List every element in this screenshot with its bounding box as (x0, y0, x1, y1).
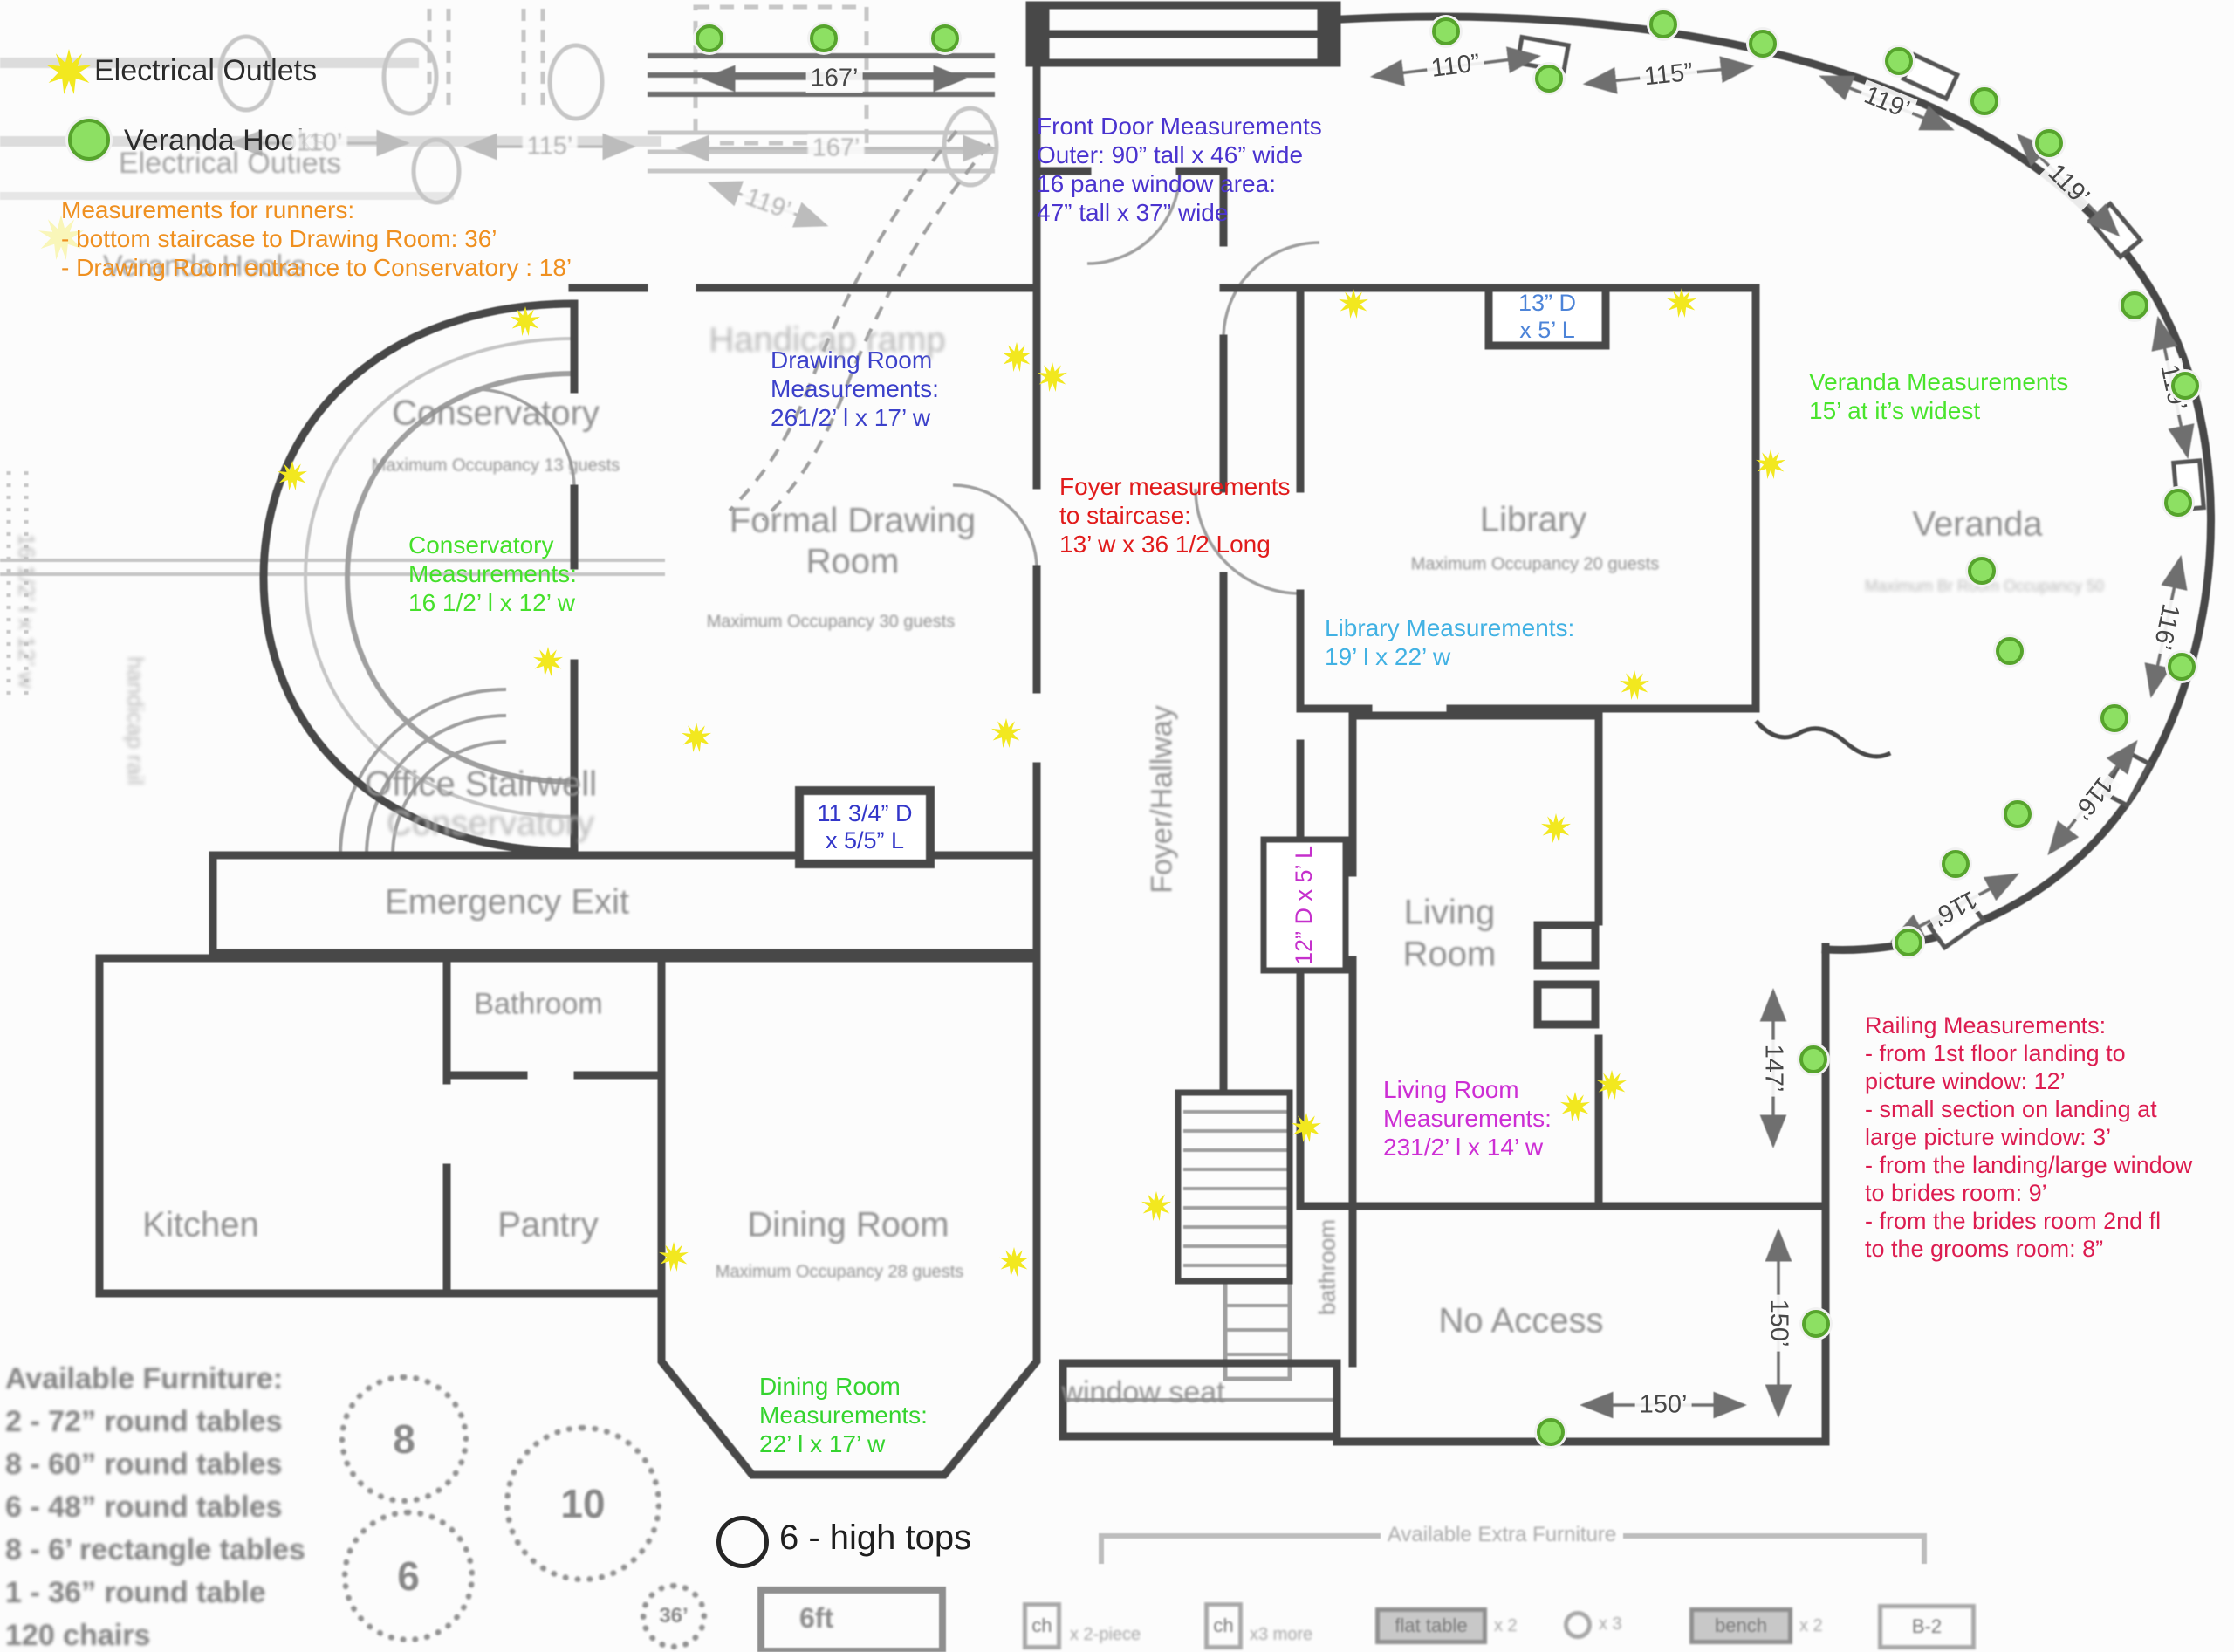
round-table: 10 (504, 1425, 661, 1582)
veranda-hook-icon (1970, 87, 1998, 115)
high-tops-label: 6 - high tops (779, 1518, 971, 1558)
veranda-hook-icon (2121, 291, 2148, 319)
legend-electrical-outlets-label: Electrical Outlets (94, 54, 317, 88)
room-label: Library (1480, 501, 1586, 540)
veranda-hook-icon (2171, 372, 2199, 400)
extra-furniture-item (1564, 1611, 1592, 1639)
available-furniture-list: Available Furniture:2 - 72” round tables… (5, 1358, 305, 1652)
veranda-hook-icon (1968, 557, 1996, 585)
annotation-runners: Measurements for runners:- bottom stairc… (61, 195, 572, 282)
annotation-railing: Railing Measurements:- from 1st floor la… (1865, 1011, 2192, 1263)
veranda-hook-icon (810, 24, 838, 52)
room-label: Conservatory (392, 394, 600, 434)
veranda-hook-icon (696, 24, 723, 52)
veranda-hook-icon (2035, 129, 2063, 157)
veranda-hook-icon (2100, 704, 2128, 732)
room-label: Dining Room (747, 1206, 949, 1245)
extra-furniture-item-count: x 2 (1494, 1616, 1518, 1636)
dimension-label: 147’ (1759, 1040, 1788, 1097)
veranda-hook-icon (1895, 929, 1922, 956)
room-label: Office Stairwell (365, 765, 597, 805)
veranda-hook-icon (1799, 1045, 1827, 1073)
room-label: window seat (1061, 1376, 1224, 1410)
extra-furniture-item: flat table (1375, 1607, 1487, 1644)
extra-furniture-item: ch (1204, 1602, 1243, 1649)
room-label: Maximum Occupancy 13 guests (372, 456, 620, 476)
dimension-label: 150’ (1635, 1391, 1692, 1420)
room-label: Kitchen (142, 1206, 258, 1245)
dimension-box-column-13d: 13” Dx 5’ L (1489, 288, 1606, 346)
room-label: Maximum Occupancy 28 guests (716, 1263, 964, 1283)
veranda-hook-icon (2004, 800, 2032, 828)
veranda-hook-icon (2164, 489, 2192, 517)
room-label: Living (1404, 894, 1496, 933)
room-label: Foyer/Hallway (1146, 705, 1180, 893)
room-label: bathroom (1314, 1219, 1341, 1315)
annotation-veranda: Veranda Measurements15’ at it’s widest (1809, 367, 2068, 425)
room-label: 16 1/2’ l x 12’ w (13, 533, 40, 688)
round-table: 8 (339, 1374, 469, 1504)
extra-furniture-item: bench (1689, 1607, 1792, 1644)
room-label: No Access (1439, 1302, 1604, 1341)
floor-plan-canvas: Electrical Outlets Electrical Outlets Ve… (0, 0, 2234, 1652)
annotation-front-door: Front Door MeasurementsOuter: 90” tall x… (1037, 112, 1322, 227)
dimension-label: 167’ (806, 65, 863, 93)
room-label: Bathroom (474, 988, 602, 1022)
dimension-label: 110’ (292, 129, 347, 158)
extra-furniture-title: Available Extra Furniture (1388, 1523, 1616, 1547)
dimension-label: 115’ (523, 133, 578, 161)
veranda-hook-icon (1942, 850, 1970, 878)
high-top-table-icon (716, 1516, 769, 1568)
room-label: Maximum Occupancy 20 guests (1411, 555, 1660, 575)
veranda-hook-icon (931, 24, 959, 52)
extra-furniture-item: ch (1023, 1602, 1061, 1649)
extra-furniture-item-count: x 2 (1799, 1616, 1823, 1636)
veranda-hook-icon (2168, 653, 2196, 681)
dimension-box-column-11d: 11 3/4” Dx 5/5” L (799, 791, 930, 864)
veranda-hook-icon (1885, 47, 1913, 75)
extra-furniture-item: B-2 (1878, 1604, 1976, 1649)
annotation-conservatory: ConservatoryMeasurements:16 1/2’ l x 12’… (408, 531, 577, 617)
veranda-hook-icon (1537, 1418, 1565, 1446)
extra-furniture-item-count: x 2-piece (1070, 1625, 1141, 1645)
dimension-label: 115” (1639, 58, 1699, 93)
dimension-label: 150’ (1765, 1295, 1793, 1352)
round-table: 6 (342, 1510, 475, 1642)
annotation-living-room: Living RoomMeasurements:231/2’ l x 14’ w (1383, 1075, 1552, 1162)
room-label: Formal Drawing (730, 502, 976, 541)
veranda-hook-icon (1749, 30, 1777, 58)
annotation-dining-room: Dining RoomMeasurements:22’ l x 17’ w (759, 1372, 928, 1458)
veranda-hook-icon (1649, 10, 1677, 38)
room-label: Veranda (1912, 505, 2042, 545)
room-label: Maximum Occupancy 30 guests (707, 613, 956, 633)
veranda-hook-icon (1432, 17, 1460, 45)
room-label: Conservatory (387, 805, 594, 844)
extra-furniture-item-count: x3 more (1250, 1625, 1312, 1645)
room-label: Room (806, 543, 900, 582)
veranda-hook-icon (1996, 637, 2024, 665)
room-label: Handicap ramp (709, 321, 945, 360)
dimension-label: 167’ (808, 134, 865, 163)
veranda-hook-legend-icon (68, 119, 110, 161)
room-label: Pantry (497, 1206, 599, 1245)
annotation-library: Library Measurements:19’ l x 22’ w (1325, 614, 1574, 671)
six-ft-table-label: 6ft (799, 1602, 833, 1635)
room-label: handicap rail (122, 656, 149, 785)
round-table: 36’ (641, 1583, 707, 1649)
veranda-hook-icon (1802, 1310, 1830, 1338)
veranda-hook-icon (1535, 65, 1563, 93)
annotation-foyer: Foyer measurementsto staircase:13’ w x 3… (1059, 472, 1291, 559)
room-label: Room (1403, 936, 1497, 975)
extra-furniture-item-count: x 3 (1599, 1614, 1622, 1635)
room-label: Emergency Exit (385, 883, 629, 922)
dimension-box-column-12d: 12” D x 5’ L (1264, 840, 1346, 970)
